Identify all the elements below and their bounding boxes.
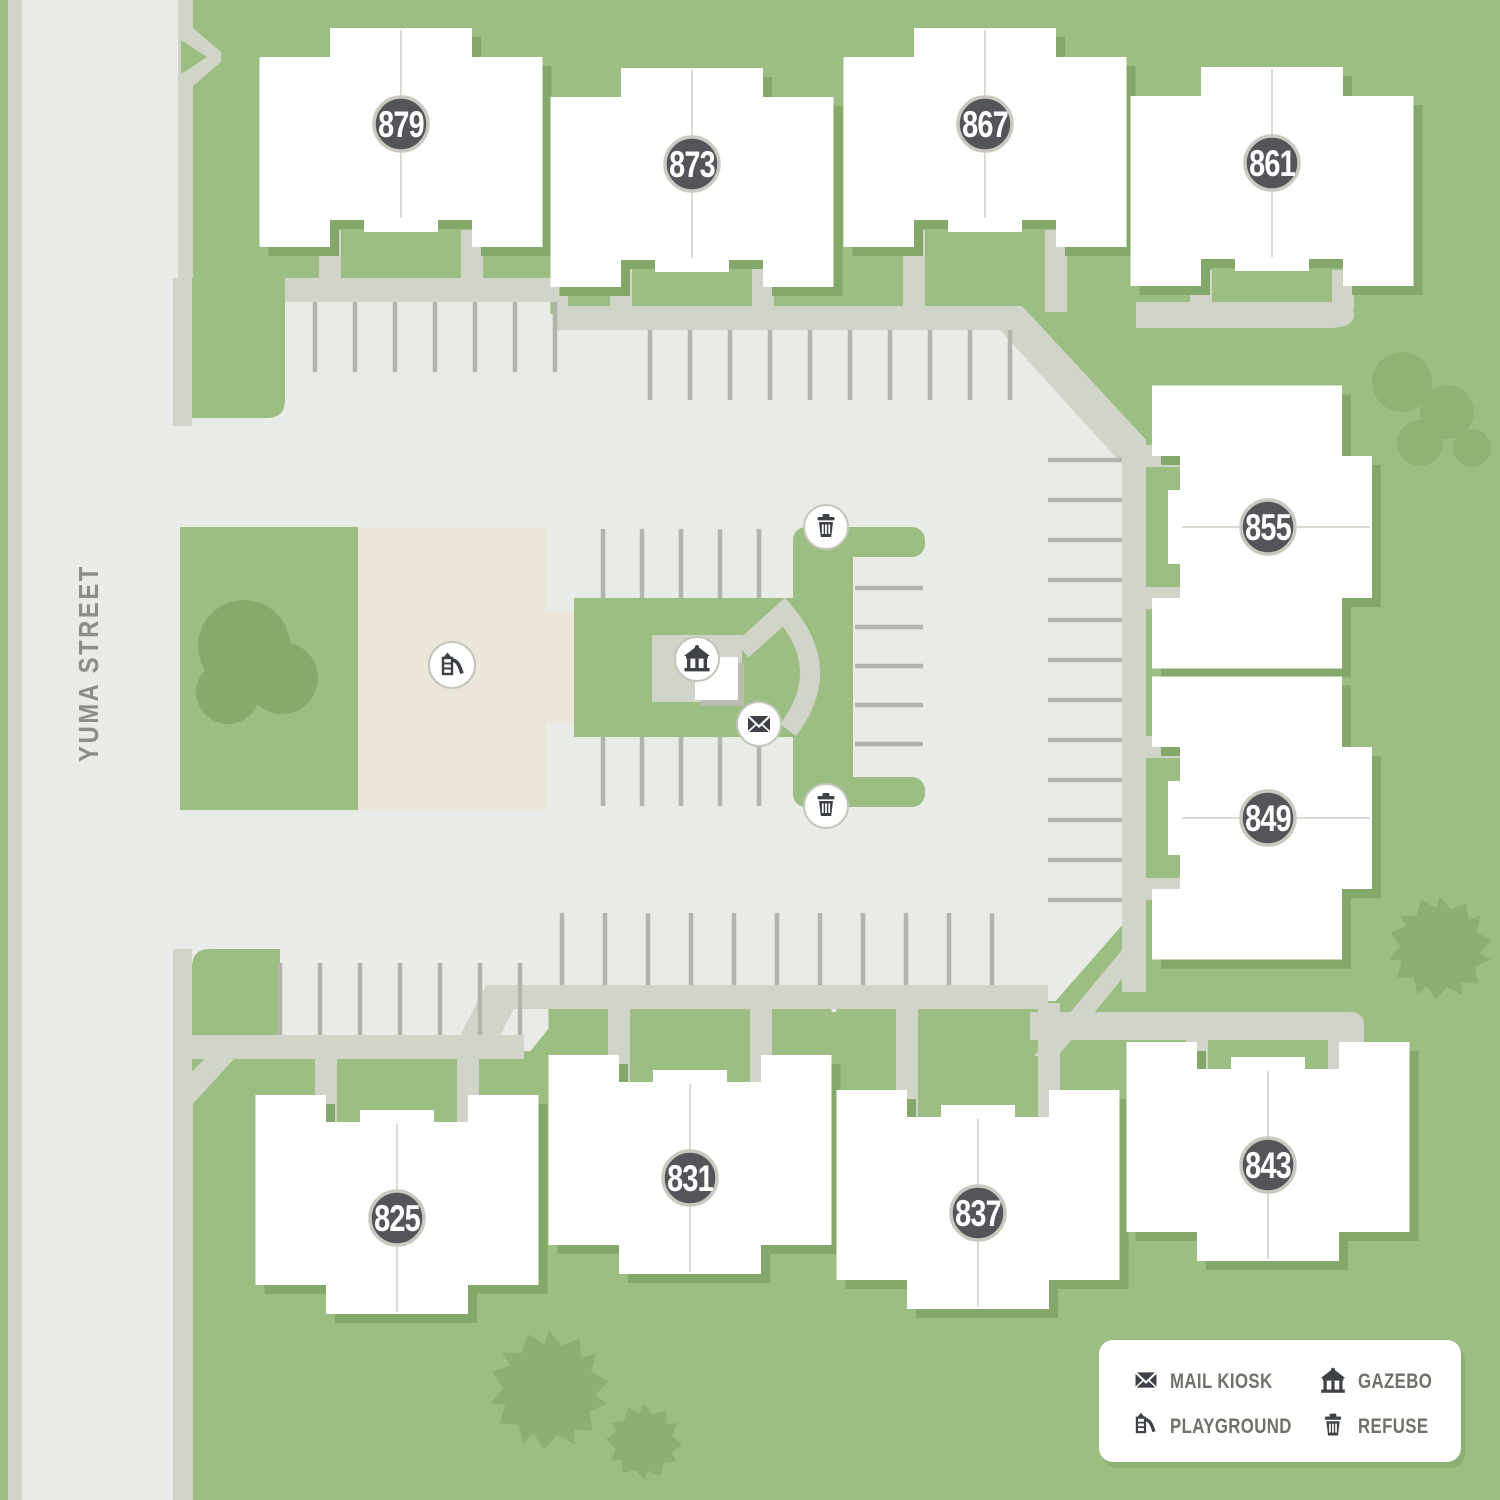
legend-label: PLAYGROUND xyxy=(1170,1415,1292,1438)
legend-box xyxy=(1099,1340,1461,1462)
refuse-marker[interactable] xyxy=(804,784,848,828)
playground-area-ext xyxy=(546,612,574,722)
building-number: 843 xyxy=(1245,1146,1291,1187)
map-legend: MAIL KIOSK GAZEBO PLAYGROUND REFUSE xyxy=(1099,1340,1465,1468)
building-number: 837 xyxy=(955,1194,1001,1235)
building-marker[interactable]: 831 xyxy=(663,1151,717,1205)
street-east-sidewalk-bottom xyxy=(173,1086,193,1500)
legend-label: REFUSE xyxy=(1358,1415,1428,1438)
site-map-canvas: YUMA STREET xyxy=(0,0,1500,1500)
building-marker[interactable]: 867 xyxy=(958,97,1012,151)
building-number: 831 xyxy=(667,1159,713,1200)
lot-corner-green-bottom xyxy=(192,949,280,1035)
building-number: 867 xyxy=(962,105,1008,146)
building-number: 879 xyxy=(378,105,424,146)
lot-corner-green-top xyxy=(192,278,285,418)
mail-kiosk-marker[interactable] xyxy=(737,702,781,746)
legend-label: MAIL KIOSK xyxy=(1170,1370,1273,1393)
building-number: 849 xyxy=(1245,799,1291,840)
playground-marker[interactable] xyxy=(429,642,475,688)
building-marker[interactable]: 825 xyxy=(370,1191,424,1245)
building-marker[interactable]: 849 xyxy=(1241,791,1295,845)
building-number: 873 xyxy=(669,145,715,186)
mail-kiosk-icon xyxy=(748,716,770,732)
gazebo-marker[interactable] xyxy=(675,637,719,681)
street-west-sidewalk xyxy=(8,0,22,1500)
site-map: YUMA STREET xyxy=(0,0,1500,1500)
street-name-label: YUMA STREET xyxy=(72,564,104,762)
building-marker[interactable]: 873 xyxy=(665,137,719,191)
building-number: 855 xyxy=(1245,508,1291,549)
building-marker[interactable]: 861 xyxy=(1245,136,1299,190)
building-marker[interactable]: 837 xyxy=(951,1186,1005,1240)
building-number: 861 xyxy=(1249,144,1295,185)
building-number: 825 xyxy=(374,1199,420,1240)
building-marker[interactable]: 855 xyxy=(1241,500,1295,554)
mail-kiosk-icon xyxy=(1136,1372,1157,1387)
legend-label: GAZEBO xyxy=(1358,1370,1432,1393)
building-marker[interactable]: 843 xyxy=(1241,1138,1295,1192)
refuse-marker[interactable] xyxy=(804,505,848,549)
building-marker[interactable]: 879 xyxy=(374,97,428,151)
